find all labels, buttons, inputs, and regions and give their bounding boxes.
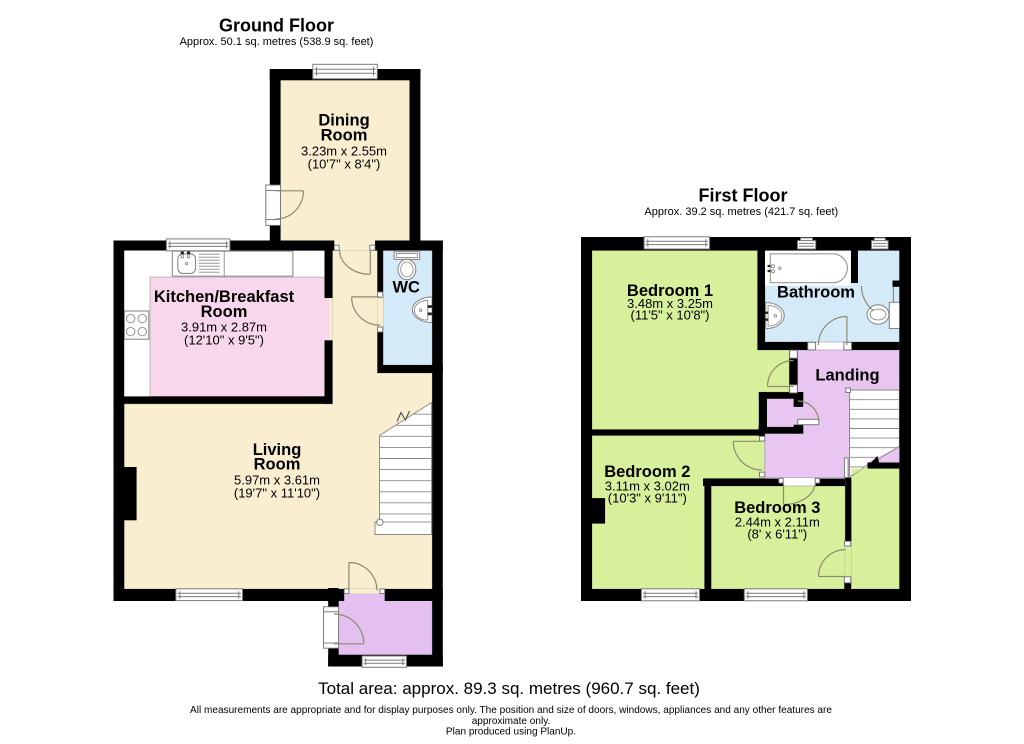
svg-text:Approx. 50.1 sq. metres (538.9: Approx. 50.1 sq. metres (538.9 sq. feet) <box>180 36 374 48</box>
svg-text:Room: Room <box>254 456 301 474</box>
svg-text:Approx. 39.2 sq. metres (421.7: Approx. 39.2 sq. metres (421.7 sq. feet) <box>644 206 838 218</box>
svg-text:Room: Room <box>201 303 248 321</box>
svg-text:(8' x 6'11"): (8' x 6'11") <box>747 527 807 542</box>
svg-text:Room: Room <box>321 127 368 145</box>
svg-text:(19'7" x 11'10"): (19'7" x 11'10") <box>234 486 320 501</box>
svg-text:First Floor: First Floor <box>699 186 788 206</box>
svg-text:(10'7" x 8'4"): (10'7" x 8'4") <box>308 156 381 171</box>
svg-text:Total area: approx. 89.3 sq. m: Total area: approx. 89.3 sq. metres (960… <box>318 679 700 698</box>
svg-text:Ground Floor: Ground Floor <box>219 16 334 36</box>
svg-text:WC: WC <box>392 279 420 297</box>
svg-text:Plan produced using PlanUp.: Plan produced using PlanUp. <box>446 727 576 738</box>
svg-text:Bathroom: Bathroom <box>777 284 855 302</box>
svg-text:All measurements are appropria: All measurements are appropriate and for… <box>190 705 832 716</box>
svg-text:(12'10" x 9'5"): (12'10" x 9'5") <box>184 332 264 347</box>
svg-text:Landing: Landing <box>815 366 879 384</box>
svg-text:approximate only.: approximate only. <box>472 716 551 727</box>
svg-text:(11'5" x 10'8"): (11'5" x 10'8") <box>631 308 710 323</box>
svg-text:(10'3" x 9'11"): (10'3" x 9'11") <box>608 491 687 506</box>
